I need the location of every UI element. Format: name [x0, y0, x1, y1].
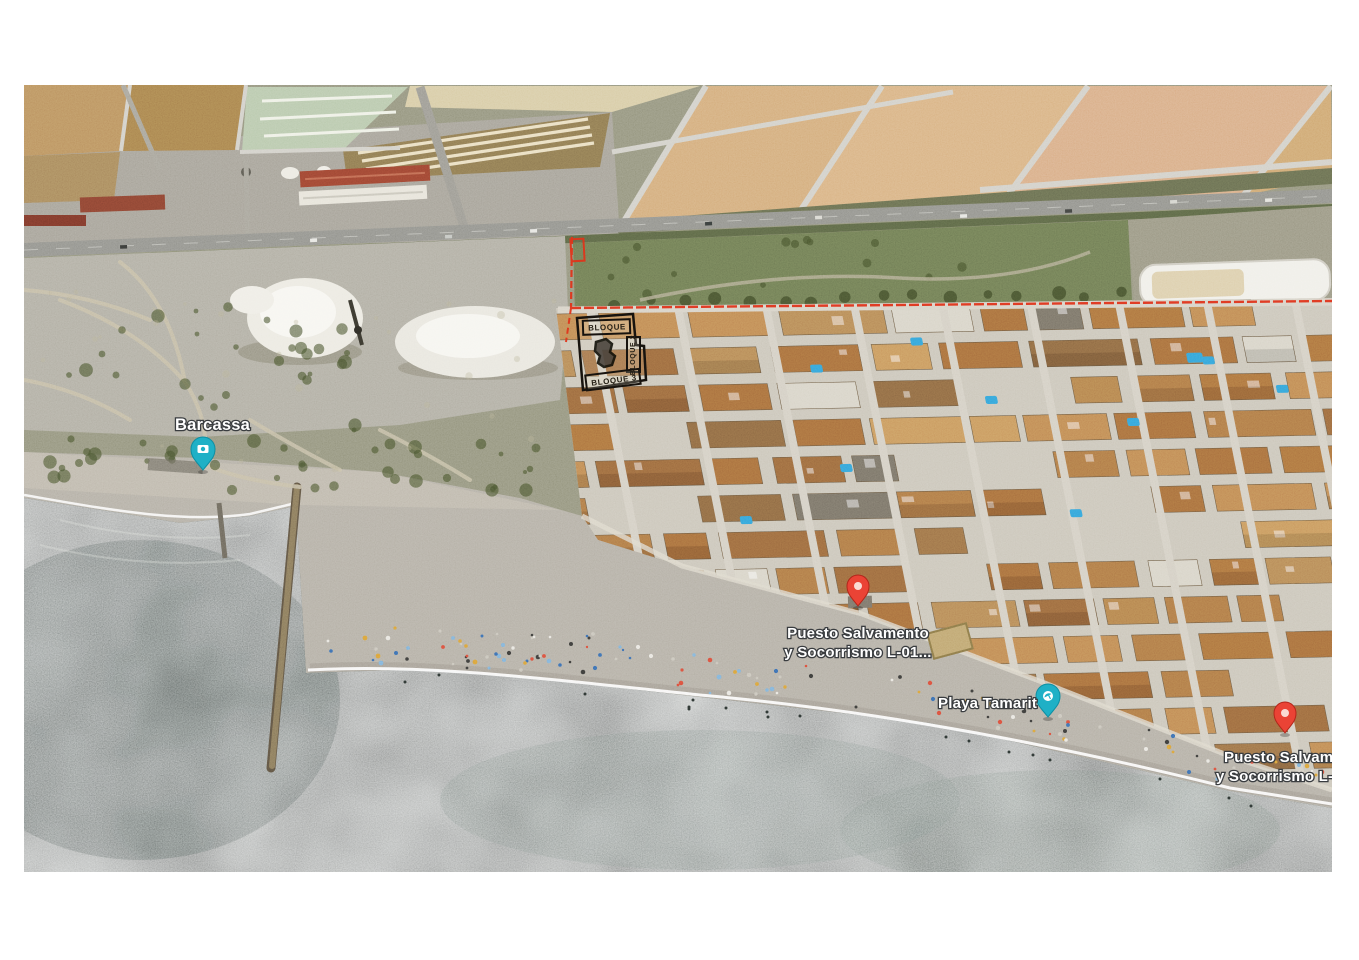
label-puesto-2-line2[interactable]: y Socorrismo L-0: [1216, 768, 1342, 785]
camera-icon: [198, 445, 209, 453]
site-plan-label-bloque1: BLOQUE: [588, 322, 626, 332]
satellite-map[interactable]: BLOQUE BLOQUE 2 BLOQUE 3: [0, 0, 1359, 960]
label-barcassa[interactable]: Barcassa: [175, 416, 251, 434]
screenshot-stage: BLOQUE BLOQUE 2 BLOQUE 3: [0, 0, 1359, 960]
satellite-grain: [24, 85, 1332, 872]
label-puesto-2-line1[interactable]: Puesto Salvamen: [1224, 749, 1351, 766]
pin-dot-icon: [1281, 709, 1289, 717]
label-puesto-1-line2[interactable]: y Socorrismo L-01...: [784, 644, 931, 661]
beach-icon: [1043, 691, 1053, 701]
site-plan-label-bloque2: BLOQUE 2: [630, 335, 637, 376]
pin-dot-icon: [854, 582, 862, 590]
label-puesto-1-line1[interactable]: Puesto Salvamento: [787, 625, 929, 642]
label-playa-tamarit[interactable]: Playa Tamarit: [938, 695, 1037, 712]
